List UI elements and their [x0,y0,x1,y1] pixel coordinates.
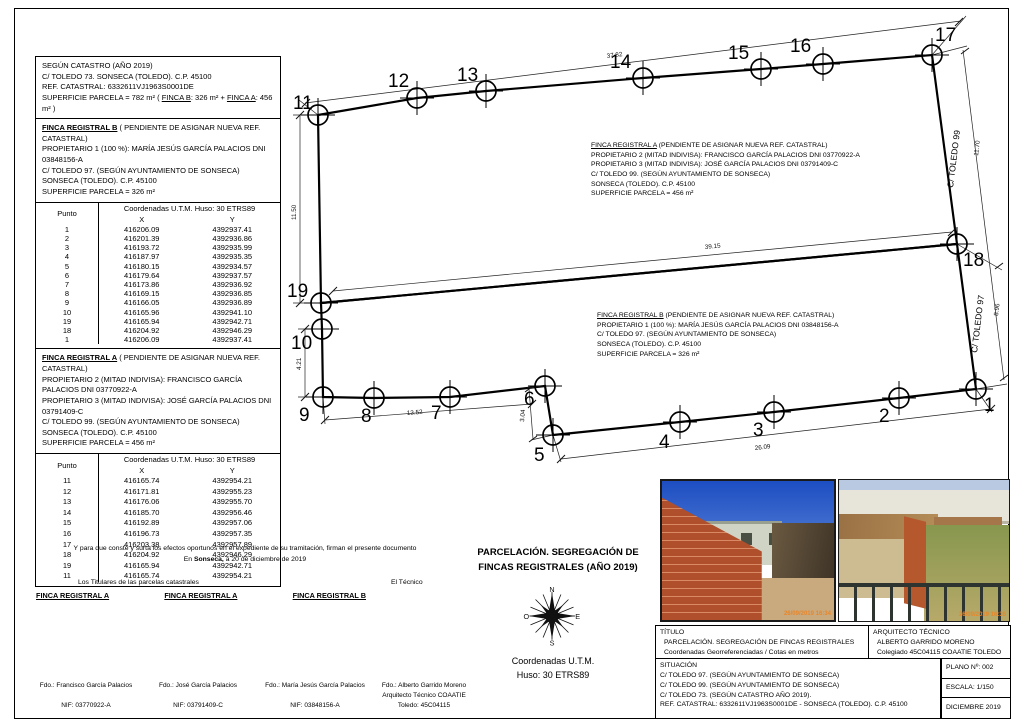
point-label: 2 [879,406,890,427]
photo-timestamp: 26/09/2019 16:36 [959,612,1006,618]
titleblock-meta: PLANO Nº: 002 ESCALA: 1/150 DICIEMBRE 20… [941,659,1010,718]
photo-railing-bar [839,583,1009,587]
signature-block: Fdo.: María Jesús García PalaciosNIF: 03… [252,681,378,711]
catastro-line: REF. CATASTRAL: 6332611VJ1963S0001DE [42,82,274,93]
tecnico-label: El Técnico [391,579,423,586]
point-label: 10 [291,333,312,354]
catastro-superficie: SUPERFICIE PARCELA = 782 m² ( FINCA B: 3… [42,93,274,114]
point-label: 4 [659,432,670,453]
dim-right-lower: 8.96 [993,303,1002,317]
photo-timestamp: 26/09/2019 16:34 [784,611,831,617]
coords-rows-finca-b: 1416206.094392937.412416201.394392936.86… [36,225,281,349]
catastro-box: SEGÚN CATASTRO (AÑO 2019) C/ TOLEDO 73. … [35,56,281,119]
point-label: 17 [935,25,956,46]
point-label: 18 [963,250,984,271]
dim-bottom-right: 26.09 [754,443,771,452]
point-label: 15 [728,43,749,64]
coords-rows-finca-a: 11416165.744392954.2112416171.814392955.… [36,476,281,586]
col-header-x: X [99,465,185,476]
plano-number: PLANO Nº: 002 [942,659,1010,679]
compass-o-label: O [524,612,530,621]
plan-sheet: SEGÚN CATASTRO (AÑO 2019) C/ TOLEDO 73. … [0,0,1024,728]
point-label: 12 [388,71,409,92]
info-panel: SEGÚN CATASTRO (AÑO 2019) C/ TOLEDO 73. … [35,57,281,587]
signature-block: Fdo.: Francisco García PalaciosNIF: 0377… [28,681,144,711]
finca-a-title: FINCA REGISTRAL A ( PENDIENTE DE ASIGNAR… [42,353,274,374]
catastro-line: SEGÚN CATASTRO (AÑO 2019) [42,61,274,72]
compass-s-label: S [550,639,555,647]
site-photo-1: 26/09/2019 16:34 [660,479,836,622]
signature-row: Fdo.: Francisco García PalaciosNIF: 0377… [28,681,470,711]
document-title: PARCELACIÓN. SEGREGACIÓN DE FINCAS REGIS… [455,545,661,575]
escala: ESCALA: 1/150 [942,679,1010,699]
compass-n-label: N [549,585,554,594]
utm-caption: Coordenadas U.T.M. Huso: 30 ETRS89 [475,655,631,683]
street-label-toledo-99: C/ TOLEDO 99 [945,129,962,188]
finca-sign-header: FINCA REGISTRAL A [164,591,237,600]
titleblock-situacion: SITUACIÓN C/ TOLEDO 97. (SEGÚN AYUNTAMIE… [656,659,941,718]
col-header-y: Y [184,214,280,225]
coords-table-finca-b: Punto Coordenadas U.T.M. Huso: 30 ETRS89… [35,202,281,350]
point-label: 7 [431,403,442,424]
finca-a-box: FINCA REGISTRAL A ( PENDIENTE DE ASIGNAR… [35,348,281,454]
titleblock-arquitecto: ARQUITECTO TÉCNICO ALBERTO GARRIDO MOREN… [869,626,1010,659]
dimension-values: 37.82 11.50 4.21 39.15 13.52 3.04 26.09 … [291,51,1002,452]
point-label: 6 [524,389,535,410]
point-label: 1 [984,395,995,416]
title-block: TÍTULO PARCELACIÓN. SEGREGACIÓN DE FINCA… [655,625,1011,719]
point-label: 19 [287,281,308,302]
dim-bottom-left: 13.52 [407,409,424,417]
signature-block: Fdo.: Alberto Garrido MorenoArquitecto T… [378,681,470,711]
dim-middle: 39.15 [705,242,722,251]
compass-e-label: E [575,612,580,621]
point-label: 8 [361,406,372,427]
col-header-x: X [99,214,185,225]
catastro-line: C/ TOLEDO 73. SONSECA (TOLEDO). C.P. 451… [42,72,274,83]
point-label: 16 [790,36,811,57]
finca-a-lines: PROPIETARIO 2 (MITAD INDIVISA): FRANCISC… [42,375,274,449]
finca-b-lines: PROPIETARIO 1 (100 %): MARÍA JESÚS GARCÍ… [42,144,274,197]
closing-paragraph: Y para que conste y surta los efectos op… [35,543,455,565]
col-header-punto: Punto [36,454,99,477]
titulares-label: Los Titulares de las parcelas catastrale… [78,579,199,586]
coords-table-finca-a: Punto Coordenadas U.T.M. Huso: 30 ETRS89… [35,453,281,587]
finca-a-plan-note: FINCA REGISTRAL A (PENDIENTE DE ASIGNAR … [588,140,872,200]
finca-b-title: FINCA REGISTRAL B ( PENDIENTE DE ASIGNAR… [42,123,274,144]
col-header-coords: Coordenadas U.T.M. Huso: 30 ETRS89 [99,454,281,466]
point-label: 13 [457,65,478,86]
dim-left: 11.50 [291,204,298,220]
col-header-coords: Coordenadas U.T.M. Huso: 30 ETRS89 [99,202,281,214]
col-header-punto: Punto [36,202,99,225]
point-label: 3 [753,420,764,441]
finca-signature-headers: FINCA REGISTRAL A FINCA REGISTRAL A FINC… [36,591,366,600]
point-label: 11 [293,93,313,114]
point-label: 5 [534,445,545,466]
col-header-y: Y [184,465,280,476]
compass-rose: N E S O [521,585,583,647]
finca-sign-header: FINCA REGISTRAL B [293,591,366,600]
point-label: 14 [610,52,632,73]
finca-b-box: FINCA REGISTRAL B ( PENDIENTE DE ASIGNAR… [35,118,281,202]
dim-right-upper: 11.70 [973,140,982,157]
point-label: 9 [299,405,310,426]
finca-b-plan-note: FINCA REGISTRAL B (PENDIENTE DE ASIGNAR … [594,310,872,360]
dim-step: 3.04 [519,409,527,422]
street-label-toledo-97: C/ TOLEDO 97 [969,294,986,353]
dim-left-lower: 4.21 [296,357,303,370]
site-photo-2: 26/09/2019 16:36 [838,479,1010,622]
signature-block: Fdo.: José García PalaciosNIF: 03791409-… [144,681,252,711]
parcel-plan: 37.82 11.50 4.21 39.15 13.52 3.04 26.09 … [285,8,1020,486]
titleblock-titulo: TÍTULO PARCELACIÓN. SEGREGACIÓN DE FINCA… [656,626,869,659]
finca-sign-header: FINCA REGISTRAL A [36,591,109,600]
fecha: DICIEMBRE 2019 [942,698,1010,718]
